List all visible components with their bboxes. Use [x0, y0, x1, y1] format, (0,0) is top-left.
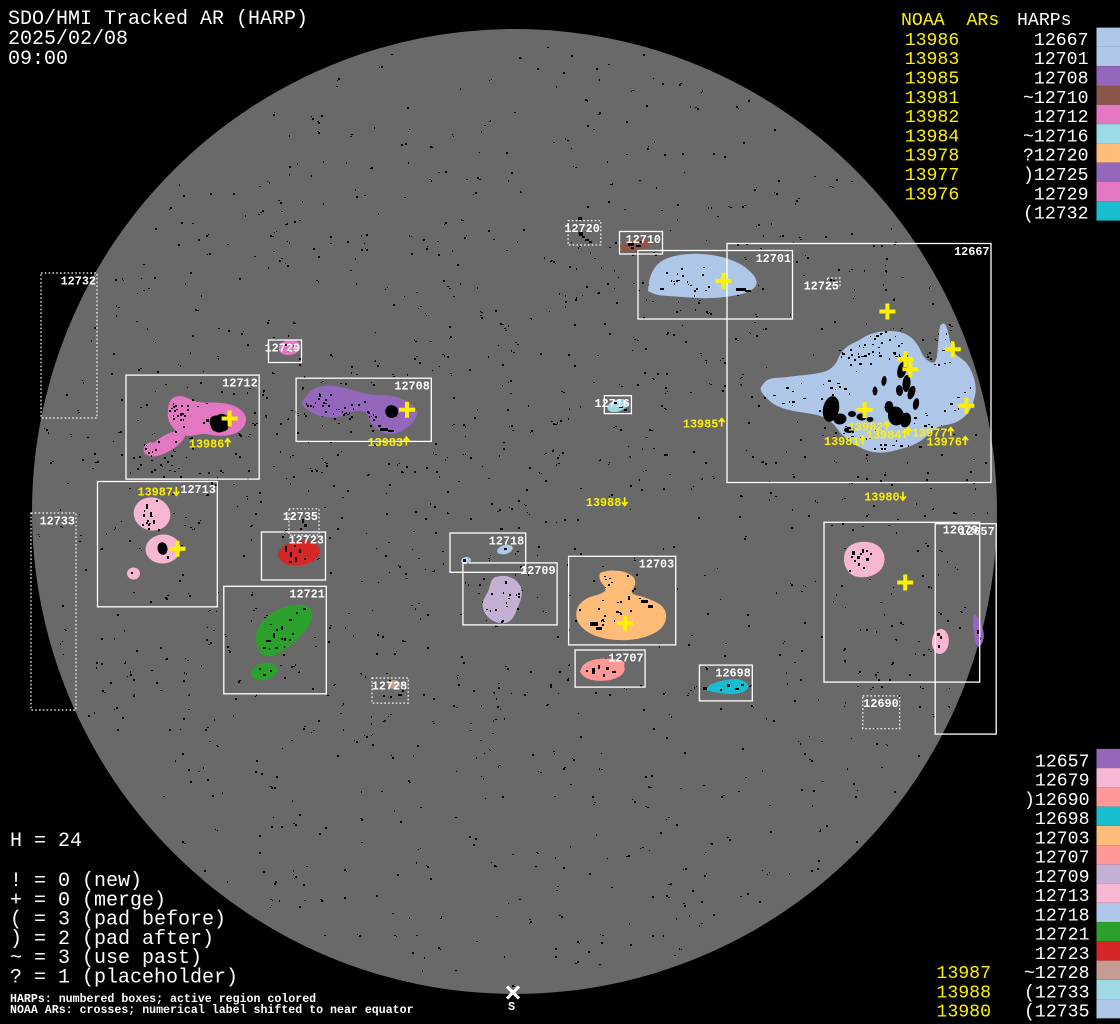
svg-text:? = 1 (placeholder): ? = 1 (placeholder) [10, 967, 238, 990]
svg-text:HARPs: HARPs [1017, 11, 1072, 31]
svg-text:13983: 13983 [368, 436, 403, 450]
svg-text:13984: 13984 [866, 429, 901, 443]
svg-text:12713: 12713 [180, 483, 215, 497]
svg-text:12703: 12703 [1035, 829, 1090, 849]
svg-text:NOAA ARs: NOAA ARs [901, 11, 999, 31]
svg-text:12721: 12721 [1035, 926, 1090, 946]
svg-text:12723: 12723 [1035, 945, 1090, 965]
svg-text:?12720: ?12720 [1023, 147, 1089, 167]
svg-text:12713: 12713 [1035, 887, 1090, 907]
svg-text:12729: 12729 [1034, 185, 1089, 205]
svg-text:(12735: (12735 [1024, 1003, 1090, 1023]
svg-text:)12725: )12725 [1023, 166, 1089, 186]
svg-text:12718: 12718 [1035, 906, 1090, 926]
svg-text:13981: 13981 [905, 89, 960, 109]
svg-text:12725: 12725 [804, 279, 839, 293]
svg-text:12667: 12667 [1034, 31, 1089, 51]
svg-text:13976: 13976 [905, 185, 960, 205]
svg-text:~12716: ~12716 [1023, 127, 1089, 147]
svg-text:13978: 13978 [905, 147, 960, 167]
svg-text:13988: 13988 [586, 496, 621, 510]
svg-text:12698: 12698 [715, 666, 750, 680]
svg-text:13986: 13986 [905, 31, 960, 51]
svg-text:12712: 12712 [1034, 108, 1089, 128]
svg-text:13986: 13986 [189, 438, 224, 452]
svg-text:12707: 12707 [608, 651, 643, 665]
svg-text:13985: 13985 [905, 70, 960, 90]
svg-text:12718: 12718 [489, 534, 524, 548]
svg-text:13982: 13982 [905, 108, 960, 128]
svg-text:12733: 12733 [40, 514, 75, 528]
svg-text:)12690: )12690 [1024, 791, 1090, 811]
svg-text:13977: 13977 [905, 166, 960, 186]
svg-text:13980: 13980 [936, 1003, 991, 1023]
svg-text:12690: 12690 [863, 697, 898, 711]
svg-text:13988: 13988 [936, 983, 991, 1003]
svg-text:12708: 12708 [1034, 70, 1089, 90]
svg-text:12703: 12703 [639, 558, 674, 572]
svg-text:13981: 13981 [824, 435, 859, 449]
svg-text:12735: 12735 [283, 510, 318, 524]
svg-text:13985: 13985 [683, 417, 718, 431]
svg-text:12709: 12709 [520, 564, 555, 578]
svg-text:12701: 12701 [1034, 50, 1089, 70]
svg-text:12729: 12729 [265, 341, 300, 355]
svg-text:12698: 12698 [1035, 810, 1090, 830]
svg-text:12708: 12708 [394, 380, 429, 394]
svg-text:13976: 13976 [927, 436, 962, 450]
svg-text:12679: 12679 [943, 524, 978, 538]
svg-text:12679: 12679 [1035, 772, 1090, 792]
svg-text:12701: 12701 [756, 252, 791, 266]
svg-text:12728: 12728 [372, 679, 407, 693]
svg-text:13983: 13983 [905, 50, 960, 70]
svg-text:12723: 12723 [289, 533, 324, 547]
svg-text:13987: 13987 [138, 486, 173, 500]
svg-text:12710: 12710 [626, 233, 661, 247]
svg-text:H = 24: H = 24 [10, 830, 82, 853]
svg-text:~12710: ~12710 [1023, 89, 1089, 109]
svg-text:(12732: (12732 [1023, 205, 1089, 225]
svg-text:12709: 12709 [1035, 868, 1090, 888]
svg-text:~12728: ~12728 [1024, 964, 1090, 984]
svg-text:13980: 13980 [864, 491, 899, 505]
svg-text:12712: 12712 [222, 376, 257, 390]
svg-text:12657: 12657 [1035, 752, 1090, 772]
svg-text:(12733: (12733 [1024, 983, 1090, 1003]
svg-text:13984: 13984 [905, 127, 960, 147]
svg-text:13987: 13987 [936, 964, 991, 984]
svg-text:12721: 12721 [289, 588, 324, 602]
svg-text:NOAA ARs: crosses; numerical l: NOAA ARs: crosses; numerical label shift… [10, 1004, 414, 1017]
svg-text:12707: 12707 [1035, 849, 1090, 869]
svg-text:S: S [508, 1000, 515, 1014]
svg-text:09:00: 09:00 [8, 48, 68, 71]
svg-text:12716: 12716 [594, 397, 629, 411]
svg-text:12732: 12732 [61, 274, 96, 288]
svg-text:12667: 12667 [954, 245, 989, 259]
svg-text:12720: 12720 [564, 222, 599, 236]
